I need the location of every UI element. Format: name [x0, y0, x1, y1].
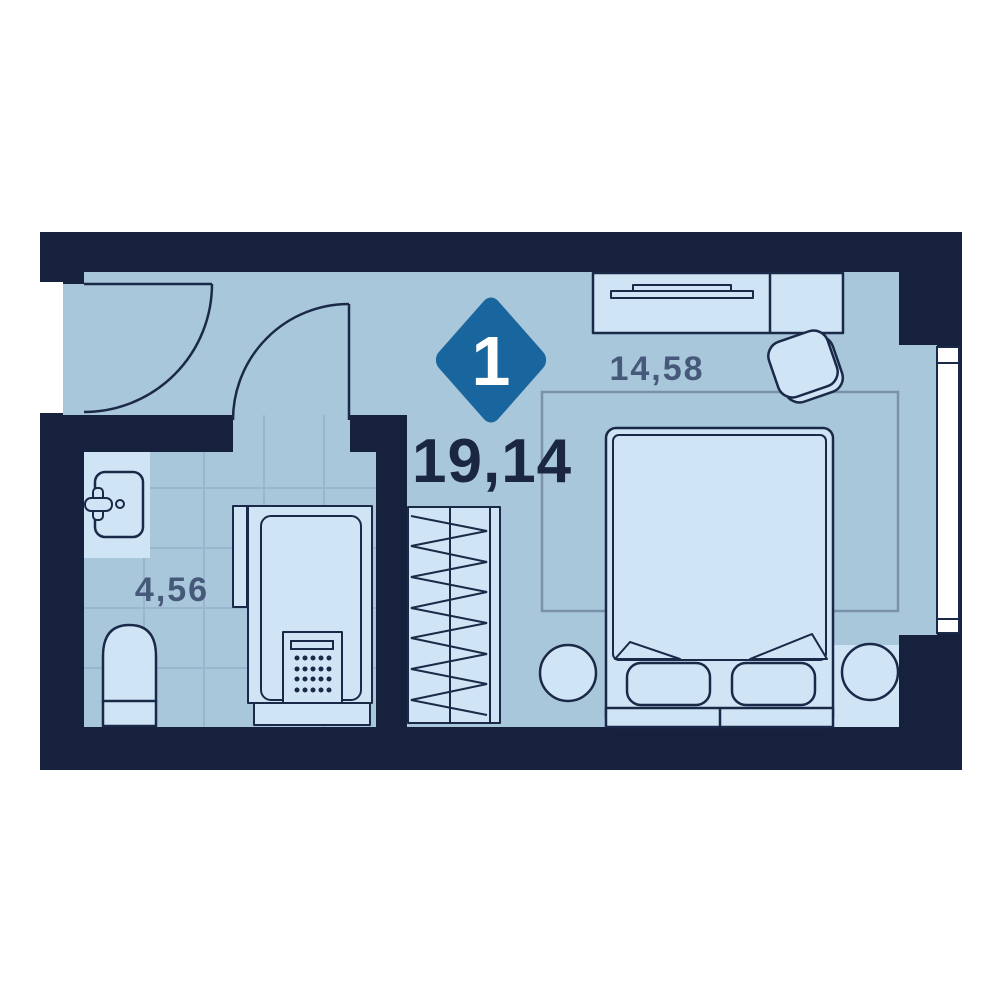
- floorplan-canvas: 1 19,14 14,58 4,56: [0, 0, 1000, 1000]
- wardrobe: [408, 507, 500, 723]
- toilet-tank: [103, 701, 156, 726]
- sink-tap-spout: [85, 498, 112, 511]
- floorplan-drawing: 1 19,14 14,58 4,56: [0, 0, 1000, 1000]
- nightstand-right: [842, 644, 898, 700]
- sink: [84, 452, 150, 558]
- badge-rooms-count: 1: [472, 322, 511, 400]
- desk: [593, 273, 843, 333]
- window-frame: [937, 347, 959, 633]
- bedroom-area-label: 14,58: [609, 350, 704, 388]
- sink-drain: [116, 500, 124, 508]
- shower-door-panel: [233, 506, 247, 607]
- bathroom-wall-right-of-door: [350, 415, 376, 452]
- toilet: [103, 625, 156, 726]
- bathroom-area-label: 4,56: [135, 571, 209, 609]
- bathroom-wall-left-of-door: [84, 415, 233, 452]
- toilet-bowl: [103, 625, 156, 702]
- laptop-base: [611, 291, 753, 298]
- desk-top: [593, 273, 843, 333]
- shower-tray: [254, 703, 370, 725]
- total-area-label: 19,14: [412, 427, 572, 496]
- window: [937, 347, 959, 633]
- pillow-right: [732, 663, 815, 705]
- entrance-opening: [40, 282, 63, 413]
- window-bay-floor: [899, 345, 937, 635]
- nightstand-left: [540, 645, 596, 701]
- bed: [606, 428, 833, 727]
- pillow-left: [627, 663, 710, 705]
- shower: [233, 506, 372, 725]
